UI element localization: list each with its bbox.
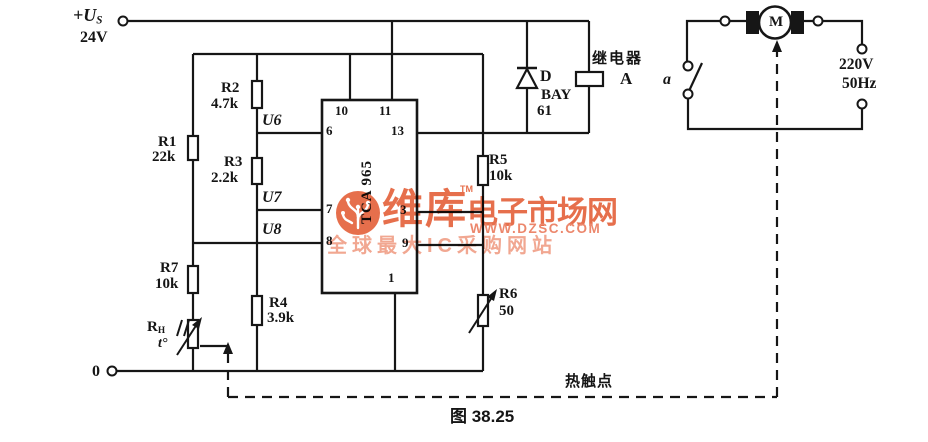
diode-part2: 61 [537, 104, 552, 119]
vs-value: 24V [80, 30, 108, 46]
resistor-r3 [252, 158, 262, 184]
ic-pin-1: 1 [388, 271, 395, 284]
r7-value: 10k [155, 277, 178, 292]
r5-name: R5 [489, 153, 507, 168]
resistor-r5 [478, 156, 488, 185]
ic-pin-11: 11 [379, 104, 391, 117]
vs-label: +US [73, 6, 102, 27]
ac-frequency: 50Hz [842, 76, 876, 92]
r3-name: R3 [224, 155, 242, 170]
relay-ref: A [620, 70, 632, 87]
r4-name: R4 [269, 296, 287, 311]
schematic-wire-layer [0, 0, 928, 442]
r7-name: R7 [160, 261, 178, 276]
motor-left-terminal [721, 17, 730, 26]
motor-right-terminal [814, 17, 823, 26]
relay-label: 继电器 [592, 51, 643, 66]
node-u6: U6 [262, 113, 282, 129]
r4-value: 3.9k [267, 311, 294, 326]
gnd-terminal [108, 367, 117, 376]
ac-top-terminal [858, 45, 867, 54]
r2-name: R2 [221, 81, 239, 96]
ac-voltage: 220V [839, 57, 873, 73]
diode-ref: D [540, 69, 552, 85]
thermal-contact-label: 热触点 [565, 374, 613, 389]
relay-coil [576, 72, 603, 86]
r1-name: R1 [158, 135, 176, 150]
ic-pin-3: 3 [400, 203, 407, 216]
rh-temp-label: t° [158, 337, 168, 351]
r6-value: 50 [499, 304, 514, 319]
figure-caption: 图 38.25 [450, 408, 514, 425]
ic-pin-8: 8 [326, 234, 333, 247]
ic-part-label: TCA 965 [358, 142, 376, 242]
node-u8: U8 [262, 222, 282, 238]
circuit-schematic: +US 24V 0 R1 22k R2 4.7k R3 2.2k R7 10k … [0, 0, 928, 442]
ic-pin-13: 13 [391, 124, 404, 137]
diode-anode-triangle [517, 69, 537, 88]
resistor-r7 [188, 266, 198, 293]
motor-brush-right [791, 11, 804, 34]
resistor-r2 [252, 81, 262, 108]
r1-value: 22k [152, 150, 175, 165]
ic-pin-10: 10 [335, 104, 348, 117]
r6-name: R6 [499, 287, 517, 302]
diode-symbol [517, 68, 537, 88]
switch-label: a [663, 72, 671, 88]
gnd-label: 0 [92, 364, 100, 380]
r3-value: 2.2k [211, 171, 238, 186]
vs-terminal [119, 17, 128, 26]
rh-name: RH [147, 320, 165, 336]
motor-label: M [769, 15, 783, 30]
r5-value: 10k [489, 169, 512, 184]
diode-part1: BAY [541, 88, 571, 103]
resistor-r1 [188, 136, 198, 160]
thermal-arrowhead-motor [772, 40, 782, 52]
resistor-r4 [252, 296, 262, 325]
ac-bottom-terminal [858, 100, 867, 109]
node-u7: U7 [262, 190, 282, 206]
ic-pin-6: 6 [326, 124, 333, 137]
motor-brush-left [746, 11, 759, 34]
switch-bottom-terminal [684, 90, 693, 99]
ic-pin-7: 7 [326, 202, 333, 215]
ic-pin-9: 9 [402, 236, 409, 249]
switch-top-terminal [684, 62, 693, 71]
r2-value: 4.7k [211, 97, 238, 112]
thermal-arrowhead-left [223, 342, 233, 354]
